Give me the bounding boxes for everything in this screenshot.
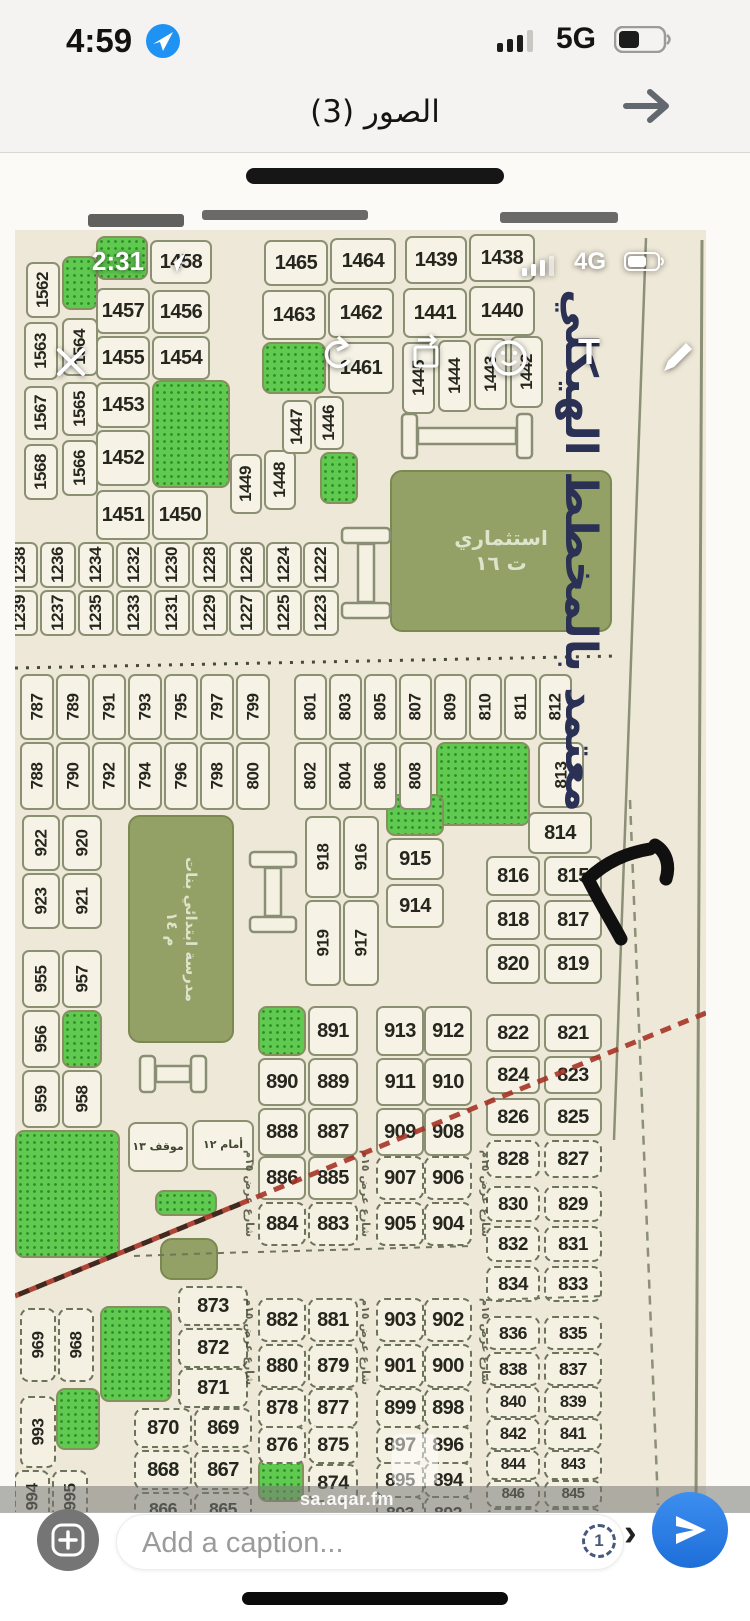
plot-number: 870 <box>147 1417 179 1440</box>
plot-cell: 1455 <box>96 336 150 380</box>
plot-number: 957 <box>72 966 92 993</box>
park-area <box>152 380 230 488</box>
plot-number: 1229 <box>200 595 220 631</box>
plot-cell: 877 <box>308 1388 358 1428</box>
plot-cell: 922 <box>22 815 60 871</box>
plot-number: 830 <box>498 1193 528 1215</box>
plot-number: 803 <box>336 694 356 721</box>
plot-number: 1227 <box>237 595 257 631</box>
plot-number: 792 <box>99 763 119 790</box>
plot-number: 815 <box>557 865 589 888</box>
plot-number: 1454 <box>160 347 203 370</box>
plot-number: 875 <box>317 1434 348 1457</box>
plot-number: 843 <box>561 1456 586 1474</box>
plot-number: 958 <box>72 1086 92 1113</box>
plot-number: 905 <box>384 1213 416 1236</box>
plot-number: 819 <box>557 953 589 976</box>
plot-number: 885 <box>317 1167 349 1190</box>
plot-number: 793 <box>135 694 155 721</box>
plot-number: 1234 <box>86 547 106 583</box>
plot-number: 918 <box>313 844 333 871</box>
plot-cell: 969 <box>20 1308 56 1382</box>
attach-plus-button[interactable] <box>37 1509 99 1571</box>
plot-number: 908 <box>432 1121 464 1144</box>
plot-cell: 1449 <box>230 454 262 514</box>
plot-number: 872 <box>197 1337 229 1360</box>
aqar-watermark-logo <box>392 1434 438 1486</box>
forward-arrow-icon[interactable] <box>622 84 672 128</box>
plot-cell: 1223 <box>303 590 339 636</box>
plot-cell: 1237 <box>40 590 76 636</box>
plot-cell: 1225 <box>266 590 302 636</box>
plot-cell: 883 <box>308 1202 358 1246</box>
road-line <box>614 238 646 1140</box>
plot-cell: 1567 <box>24 386 58 440</box>
plot-cell: 841 <box>544 1418 602 1450</box>
road-line <box>696 240 702 1505</box>
zoned-area: مدرسة ابتدائي بناتم ١٤ <box>128 815 234 1043</box>
plot-cell: 831 <box>544 1226 602 1262</box>
plot-number: 968 <box>66 1332 86 1359</box>
park-area <box>62 1010 102 1068</box>
plot-cell: 907 <box>376 1156 424 1200</box>
plot-number: 898 <box>432 1397 464 1420</box>
plot-number: 809 <box>441 694 461 721</box>
plot-cell: 1446 <box>314 396 344 450</box>
plot-number: 911 <box>385 1071 416 1094</box>
plot-number: 871 <box>197 1377 229 1400</box>
plot-number: 1237 <box>48 595 68 631</box>
plot-cell: 900 <box>424 1344 472 1388</box>
plot-cell: 903 <box>376 1298 424 1342</box>
plot-number: 900 <box>432 1355 464 1378</box>
plot-cell: 1447 <box>282 400 312 454</box>
plot-cell: 867 <box>194 1450 252 1490</box>
plot-cell: 819 <box>544 944 602 984</box>
plot-number: 909 <box>384 1121 416 1144</box>
plot-cell: 870 <box>134 1408 192 1448</box>
plot-cell: 799 <box>236 674 270 740</box>
plot-cell: 1439 <box>405 236 467 284</box>
plot-cell: 844 <box>486 1450 540 1480</box>
plot-cell: 923 <box>22 873 60 929</box>
plot-number: 800 <box>243 763 263 790</box>
svg-text:T: T <box>578 331 600 372</box>
plot-number: 1562 <box>33 272 53 308</box>
image-edge-fragment <box>88 214 184 227</box>
plot-number: 882 <box>266 1309 298 1332</box>
watermark-strip: sa.aqar.fm <box>0 1486 750 1513</box>
plot-number: 824 <box>497 1064 528 1087</box>
plot-cell: 920 <box>62 815 102 871</box>
plot-number: 1232 <box>124 547 144 583</box>
plot-number: 884 <box>266 1213 298 1236</box>
plot-cell: 1462 <box>328 288 394 338</box>
plot-cell: 1239 <box>15 590 38 636</box>
plot-cell: 824 <box>486 1056 540 1094</box>
street-name-label: شارع عرض ١٥م <box>476 1298 492 1390</box>
plot-cell: 993 <box>20 1396 56 1468</box>
plot-number: 796 <box>171 763 191 790</box>
plot-number: 836 <box>499 1323 527 1344</box>
plot-cell: 833 <box>544 1266 602 1302</box>
plot-cell: 1452 <box>96 430 150 486</box>
plot-number: 955 <box>31 966 51 993</box>
plot-cell: 826 <box>486 1098 540 1136</box>
plot-cell: 912 <box>424 1006 472 1056</box>
plot-number: 831 <box>558 1233 588 1255</box>
plot-cell: 791 <box>92 674 126 740</box>
plot-cell: 1451 <box>96 490 150 540</box>
plot-number: 903 <box>384 1309 416 1332</box>
plot-cell: 842 <box>486 1418 540 1450</box>
plus-icon <box>50 1522 86 1558</box>
plot-number: 788 <box>27 763 47 790</box>
plot-number: 820 <box>497 953 529 976</box>
plot-cell: 800 <box>236 742 270 810</box>
plot-cell: 818 <box>486 900 540 940</box>
plot-number: 881 <box>317 1309 349 1332</box>
plot-cell: 1236 <box>40 542 76 588</box>
park-area <box>320 452 358 504</box>
inner-battery-icon <box>624 252 666 271</box>
plot-number: 802 <box>301 763 321 790</box>
plot-number: 1464 <box>342 250 385 273</box>
plot-cell: 1235 <box>78 590 114 636</box>
plot-cell: 916 <box>343 816 379 898</box>
plot-number: 1228 <box>200 547 220 583</box>
plot-number: 1439 <box>415 249 458 272</box>
plot-number: 1456 <box>160 301 203 324</box>
plot-number: 899 <box>384 1397 416 1420</box>
rotate-crop-icon[interactable] <box>404 332 448 376</box>
plot-number: 873 <box>197 1295 229 1318</box>
plot-cell: 1231 <box>154 590 190 636</box>
plot-cell: 921 <box>62 873 102 929</box>
plot-number: 889 <box>317 1071 349 1094</box>
plot-number: 878 <box>266 1397 298 1420</box>
plot-number: 922 <box>31 830 51 857</box>
plot-cell: 837 <box>544 1352 602 1386</box>
plot-number: 841 <box>560 1424 586 1444</box>
plot-cell: 835 <box>544 1316 602 1350</box>
plot-cell: 807 <box>399 674 432 740</box>
plot-cell: 816 <box>486 856 540 896</box>
plot-number: 890 <box>266 1071 298 1094</box>
plot-cell: 919 <box>305 900 341 986</box>
park-area <box>100 1306 172 1402</box>
boundary-dotted-line <box>15 656 618 668</box>
plot-cell: 1454 <box>152 336 210 380</box>
plot-number: 906 <box>432 1167 464 1190</box>
plot-number: 923 <box>31 888 51 915</box>
plot-number: 1449 <box>236 466 256 502</box>
plot-number: 1238 <box>15 547 30 583</box>
plot-cell: 880 <box>258 1344 306 1388</box>
plot-number: 838 <box>499 1359 527 1380</box>
plot-number: 1236 <box>48 547 68 583</box>
plot-cell: 876 <box>258 1426 306 1464</box>
plot-cell: 905 <box>376 1202 424 1246</box>
plot-cell: 901 <box>376 1344 424 1388</box>
road-dashed-line <box>630 800 658 1505</box>
plot-cell: 1234 <box>78 542 114 588</box>
plot-cell: 832 <box>486 1226 540 1262</box>
plot-cell: 795 <box>164 674 198 740</box>
plot-number: 883 <box>317 1213 349 1236</box>
plot-cell: 1562 <box>26 262 60 318</box>
plot-cell: 1464 <box>330 238 396 284</box>
plot-number: 816 <box>497 865 529 888</box>
inner-cursor-icon <box>164 250 188 274</box>
plot-cell: 906 <box>424 1156 472 1200</box>
plot-cell: 834 <box>486 1266 540 1302</box>
plot-cell: 788 <box>20 742 54 810</box>
plot-cell: 811 <box>504 674 537 740</box>
plot-number: 1465 <box>275 252 318 275</box>
plot-cell: 915 <box>386 838 444 880</box>
plot-number: 920 <box>72 830 92 857</box>
plot-cell: 1450 <box>152 490 208 540</box>
plot-number: 833 <box>558 1273 588 1295</box>
plot-number: 1563 <box>31 333 51 369</box>
plot-cell: 805 <box>364 674 397 740</box>
plot-number: 832 <box>498 1233 528 1255</box>
plot-cell: 1238 <box>15 542 38 588</box>
plot-number: 993 <box>28 1419 48 1446</box>
plot-cell: 913 <box>376 1006 424 1056</box>
park-area <box>258 1006 306 1056</box>
plot-cell: 815 <box>544 856 602 896</box>
plot-cell: 797 <box>200 674 234 740</box>
plot-number: 1455 <box>102 347 145 370</box>
park-area <box>436 742 530 826</box>
plot-number: 789 <box>63 694 83 721</box>
plot-cell: 959 <box>22 1070 60 1128</box>
plot-cell: 908 <box>424 1108 472 1156</box>
plot-cell: 825 <box>544 1098 602 1136</box>
plot-cell: 821 <box>544 1014 602 1052</box>
plot-cell: 1226 <box>229 542 265 588</box>
self-destruct-timer-icon[interactable]: 1 <box>582 1524 616 1558</box>
plot-cell: 872 <box>178 1328 248 1368</box>
plot-cell: 802 <box>294 742 327 810</box>
text-tool-icon[interactable]: T <box>567 331 611 375</box>
plot-cell: 955 <box>22 950 60 1008</box>
plot-number: 1451 <box>102 504 145 527</box>
plot-number: 1225 <box>274 595 294 631</box>
battery-icon <box>614 26 668 53</box>
plot-number: 1223 <box>311 595 331 631</box>
plot-number: 1231 <box>162 595 182 631</box>
plot-number: 1224 <box>274 547 294 583</box>
plot-cell: 875 <box>308 1426 358 1464</box>
plot-cell: 1232 <box>116 542 152 588</box>
cancel-icon[interactable] <box>49 340 93 384</box>
plot-cell: 793 <box>128 674 162 740</box>
plot-number: 797 <box>207 694 227 721</box>
clock: 4:59 <box>66 22 132 60</box>
plot-cell: 904 <box>424 1202 472 1246</box>
plot-cell: 1440 <box>469 286 535 336</box>
plot-number: 969 <box>28 1332 48 1359</box>
plot-number: 1233 <box>124 595 144 631</box>
plot-cell: 1229 <box>192 590 228 636</box>
image-top-black-bar <box>246 168 504 184</box>
plot-number: 1463 <box>273 304 316 327</box>
plot-cell: 1230 <box>154 542 190 588</box>
plot-number: 1440 <box>481 300 524 323</box>
plot-cell: 803 <box>329 674 362 740</box>
plot-number: 801 <box>301 694 321 721</box>
plot-cell: 810 <box>469 674 502 740</box>
plot-number: 817 <box>557 909 589 932</box>
plot-cell: 890 <box>258 1058 306 1106</box>
plot-cell: 911 <box>376 1058 424 1106</box>
plot-cell: 838 <box>486 1352 540 1386</box>
plot-number: 1452 <box>102 447 145 470</box>
plot-number: 914 <box>399 895 431 918</box>
plot-cell: 878 <box>258 1388 306 1428</box>
plot-cell: 792 <box>92 742 126 810</box>
plot-number: 888 <box>266 1121 298 1144</box>
plot-number: 915 <box>399 848 431 871</box>
zoned-area-label: استثماريت ١٦ <box>454 526 548 576</box>
nav-bar: الصور (3) <box>0 64 750 153</box>
plot-number: 834 <box>498 1273 528 1295</box>
plot-number: 904 <box>432 1213 464 1236</box>
street-name-label: شارع عرض ١٥م <box>476 1150 492 1242</box>
plot-cell: 840 <box>486 1386 540 1418</box>
plot-number: 804 <box>336 763 356 790</box>
plot-number: 1230 <box>162 547 182 583</box>
plot-cell: 843 <box>544 1450 602 1480</box>
sticker-icon[interactable] <box>487 336 531 380</box>
plot-cell: 914 <box>386 884 444 928</box>
plot-cell: 888 <box>258 1108 306 1156</box>
plot-number: 867 <box>207 1459 239 1482</box>
plot-cell: 968 <box>58 1308 94 1382</box>
status-bar: 4:59 5G <box>0 0 750 64</box>
plot-cell: 1568 <box>24 444 58 500</box>
plot-number: 1565 <box>70 391 90 427</box>
plot-number: 826 <box>497 1106 528 1129</box>
plot-cell: 820 <box>486 944 540 984</box>
plot-number: 877 <box>317 1397 349 1420</box>
plot-cell: 830 <box>486 1186 540 1222</box>
plot-number: 844 <box>501 1456 526 1474</box>
park-area <box>155 1190 217 1216</box>
street-name-label: شارع عرض ١٥م <box>240 1150 256 1242</box>
plot-number: 798 <box>207 763 227 790</box>
inner-network-type: 4G <box>574 248 620 274</box>
send-button[interactable] <box>652 1492 728 1568</box>
plot-number: 791 <box>99 694 119 721</box>
plot-number: 835 <box>559 1323 587 1344</box>
plot-cell: 885 <box>308 1156 358 1200</box>
plot-number: 959 <box>31 1086 51 1113</box>
zoned-area <box>160 1238 218 1280</box>
plot-cell: 957 <box>62 950 102 1008</box>
plot-cell: 873 <box>178 1286 248 1326</box>
plot-number: 790 <box>63 763 83 790</box>
plot-number: 891 <box>317 1020 349 1043</box>
plot-number: 825 <box>557 1106 588 1129</box>
plot-number: 828 <box>497 1148 528 1171</box>
plot-number: 1450 <box>159 504 202 527</box>
watermark-text: sa.aqar.fm <box>300 1489 394 1510</box>
plot-number: 808 <box>406 763 426 790</box>
plot-number: 1226 <box>237 547 257 583</box>
plot-number: 879 <box>317 1355 349 1378</box>
plot-cell: 910 <box>424 1058 472 1106</box>
plot-number: 916 <box>351 844 371 871</box>
plot-cell: 868 <box>134 1450 192 1490</box>
plot-number: 1447 <box>287 409 307 445</box>
plot-number: 1568 <box>31 454 51 490</box>
plot-cell: 881 <box>308 1298 358 1342</box>
plot-number: 821 <box>557 1022 588 1045</box>
phone-screen: 4:59 5G الصور (3) <box>0 0 750 1621</box>
plot-cell: 909 <box>376 1108 424 1156</box>
street-name-label: شارع عرض ١٥م <box>356 1298 372 1390</box>
network-type: 5G <box>556 22 596 56</box>
street-name-label: شارع عرض ١٥م <box>356 1150 372 1242</box>
plot-cell: 917 <box>343 900 379 986</box>
plot-cell: 1224 <box>266 542 302 588</box>
plot-number: 822 <box>497 1022 528 1045</box>
plot-number: 829 <box>558 1193 588 1215</box>
caption-input[interactable] <box>140 1522 524 1564</box>
plot-number: 880 <box>266 1355 298 1378</box>
plot-cell: 902 <box>424 1298 472 1342</box>
plot-cell: 871 <box>178 1368 248 1408</box>
plot-cell: 828 <box>486 1140 540 1178</box>
plot-number: 1566 <box>70 450 90 486</box>
undo-icon[interactable] <box>314 333 358 377</box>
plot-cell: 1233 <box>116 590 152 636</box>
plot-number: 919 <box>313 930 333 957</box>
plot-number: 827 <box>557 1148 588 1171</box>
plot-number: 794 <box>135 763 155 790</box>
plot-cell: 823 <box>544 1056 602 1094</box>
plot-number: 807 <box>406 694 426 721</box>
street-name-label: شارع عرض ١٥م <box>240 1298 256 1390</box>
plot-number: 869 <box>207 1417 239 1440</box>
plot-number: 837 <box>559 1359 587 1380</box>
plot-cell: 796 <box>164 742 198 810</box>
plot-cell: 1441 <box>403 288 467 338</box>
plot-number: 840 <box>500 1392 526 1412</box>
plot-cell: 787 <box>20 674 54 740</box>
plot-cell: 829 <box>544 1186 602 1222</box>
plot-number: 818 <box>497 909 529 932</box>
plot-cell: 1227 <box>229 590 265 636</box>
plot-number: 912 <box>432 1020 464 1043</box>
plot-number: 886 <box>266 1167 298 1190</box>
plot-number: 1222 <box>311 547 331 583</box>
plot-number: 907 <box>384 1167 416 1190</box>
plot-cell: 790 <box>56 742 90 810</box>
home-indicator[interactable] <box>242 1592 508 1605</box>
plot-cell: 806 <box>364 742 397 810</box>
plot-cell: 898 <box>424 1388 472 1428</box>
plot-number: 1448 <box>270 462 290 498</box>
plot-cell: 817 <box>544 900 602 940</box>
plot-number: 921 <box>72 888 92 915</box>
plot-cell: 809 <box>434 674 467 740</box>
draw-tool-icon[interactable] <box>656 335 700 379</box>
